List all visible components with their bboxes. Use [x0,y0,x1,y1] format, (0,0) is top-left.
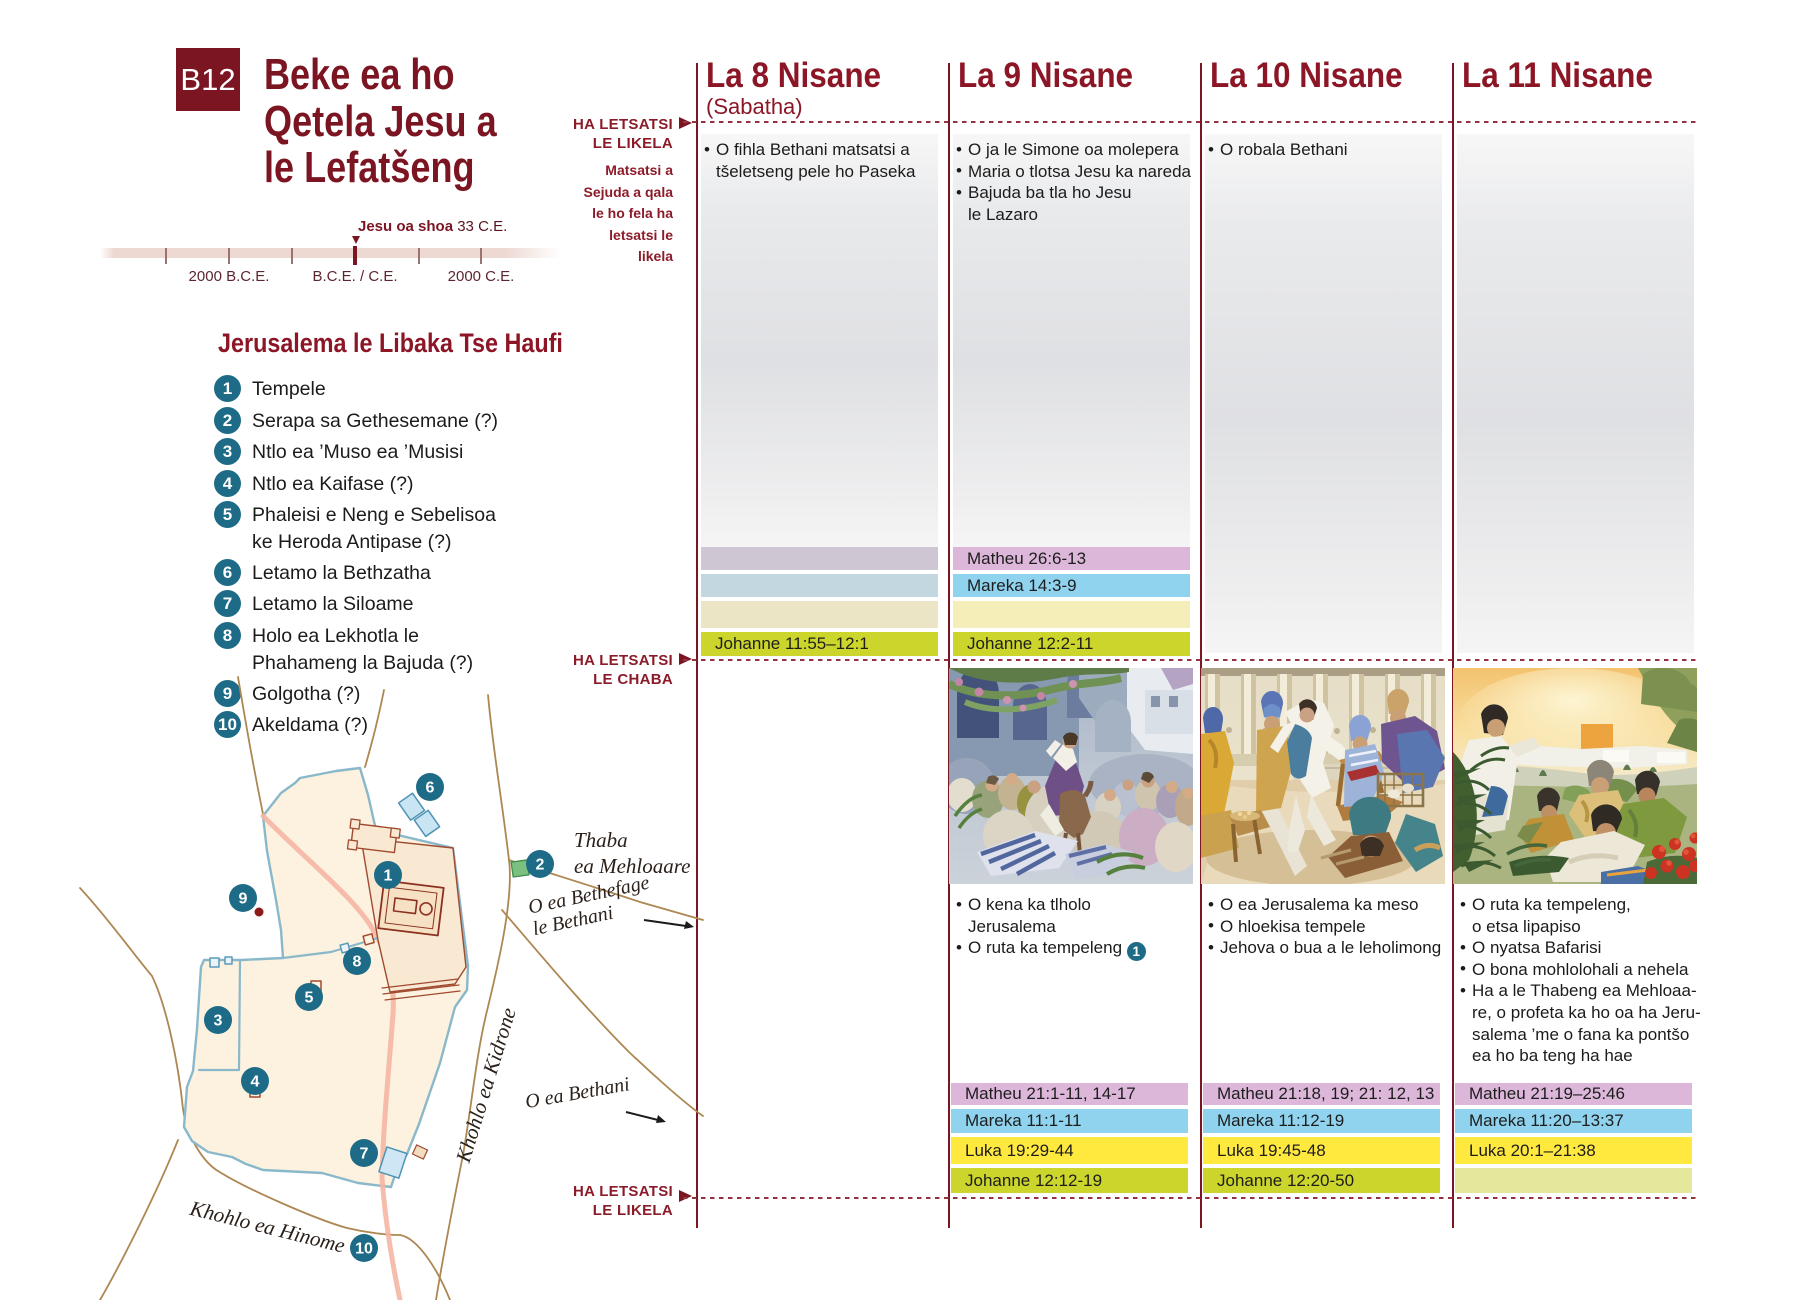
svg-text:O ea Bethani: O ea Bethani [524,1073,632,1113]
svg-text:10: 10 [355,1241,373,1258]
svg-text:2: 2 [536,857,545,874]
svg-text:Khohlo ea Hinome: Khohlo ea Hinome [187,1196,348,1258]
svg-text:5: 5 [305,990,314,1007]
svg-text:9: 9 [239,891,248,908]
svg-text:6: 6 [426,780,435,797]
svg-text:1: 1 [384,868,393,885]
svg-text:Khohlo ea Kidrone: Khohlo ea Kidrone [451,1005,521,1166]
svg-text:4: 4 [251,1074,260,1091]
svg-text:7: 7 [360,1146,369,1163]
svg-text:3: 3 [214,1013,223,1030]
svg-text:8: 8 [353,954,362,971]
svg-text:Thaba: Thaba [574,828,628,852]
